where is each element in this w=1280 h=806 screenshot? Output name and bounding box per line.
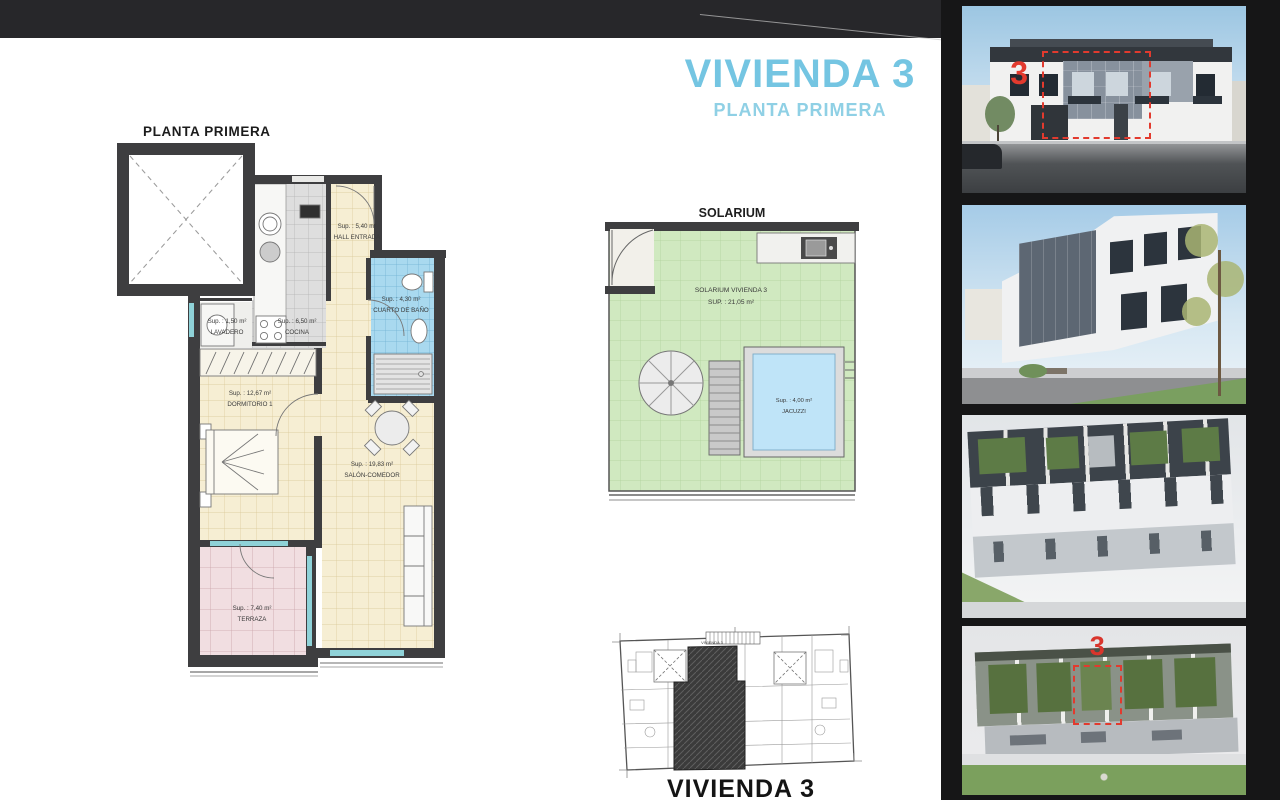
dormitorio-area-label: Sup. : 12,67 m² <box>229 390 271 397</box>
umbrella <box>639 351 703 415</box>
stairwell <box>123 149 249 290</box>
key-plan: VIVIENDA 3 VIVIENDA 3 <box>598 620 872 806</box>
lavadero-name-label: LAVADERO <box>211 329 244 336</box>
sheet-subtitle: PLANTA PRIMERA <box>640 100 960 121</box>
render-photo-aerial-top: 3 <box>962 626 1246 795</box>
window <box>1144 232 1167 266</box>
terrace-furniture <box>1081 731 1107 743</box>
sun-lounger <box>709 361 740 455</box>
roof-turf <box>978 437 1027 475</box>
hall-area-label: Sup. : 5,40 m² <box>338 223 377 230</box>
roof-turf <box>988 664 1028 714</box>
roof-turf <box>1046 436 1079 470</box>
sheet-title: VIVIENDA 3 <box>640 52 960 97</box>
roof-turf <box>1175 657 1218 707</box>
unit-number-marker: 3 <box>1010 55 1028 92</box>
main-floor-plan: Sup. : 5,40 m² HALL ENTRADA Sup. : 4,30 … <box>105 118 460 690</box>
key-plan-unit-tag: VIVIENDA 3 <box>701 640 724 645</box>
dormitorio-name-label: DORMITORIO 1 <box>227 401 273 408</box>
roof-turf <box>1037 663 1072 713</box>
facade-panel <box>1019 230 1096 347</box>
road <box>962 602 1246 618</box>
cocina-area-label: Sup. : 6,50 m² <box>278 318 317 325</box>
solarium-label-line1: SOLARIUM VIVIENDA 3 <box>695 287 768 294</box>
distant-building <box>965 289 1002 341</box>
roof-turf <box>1129 431 1167 466</box>
top-black-bar <box>0 0 941 38</box>
road <box>962 144 1246 193</box>
jacuzzi-area-label: Sup. : 4,00 m² <box>776 398 812 404</box>
render-photo-street-angle <box>962 205 1246 404</box>
roof-turf <box>1124 659 1164 709</box>
jacuzzi: Sup. : 4,00 m² JACUZZI <box>744 347 855 457</box>
car <box>962 144 1002 168</box>
roof-turf <box>1181 427 1219 463</box>
solarium-label-line2: SUP. : 21,05 m² <box>708 299 755 306</box>
bano-area-label: Sup. : 4,30 m² <box>382 296 421 303</box>
salon-name-label: SALÓN-COMEDOR <box>344 472 400 479</box>
terrace-furniture <box>1010 735 1046 746</box>
roof-paving <box>1087 435 1115 467</box>
render-photo-aerial-rear <box>962 415 1246 618</box>
terraza-area-label: Sup. : 7,40 m² <box>233 605 272 612</box>
unit-number-marker: 3 <box>1090 631 1105 662</box>
window <box>1121 291 1147 329</box>
balcony-rail <box>1193 96 1222 104</box>
bano-name-label: CUARTO DE BAÑO <box>373 307 429 314</box>
solarium-railing <box>609 495 855 500</box>
salon-area-label: Sup. : 19,83 m² <box>351 461 393 468</box>
key-plan-caption: VIVIENDA 3 <box>667 775 815 803</box>
solarium-plan: SOLARIUM Sup. : 4,00 m² JACUZZI SOLARIUM… <box>585 196 875 526</box>
building-base <box>962 754 1246 764</box>
render-photo-street-front: 3 <box>962 6 1246 193</box>
lavadero-area-label: Sup. : 1,50 m² <box>208 318 247 325</box>
window <box>1196 74 1215 95</box>
building-aerial <box>967 418 1236 578</box>
solarium-heading: SOLARIUM <box>699 206 766 220</box>
terraza-name-label: TERRAZA <box>238 616 268 623</box>
unit-highlight-box <box>1042 51 1151 139</box>
hall-name-label: HALL ENTRADA <box>334 234 381 241</box>
tree <box>976 96 1019 141</box>
photo-panel: 3 <box>941 0 1280 800</box>
solarium-door <box>605 229 655 294</box>
tree <box>1178 213 1246 396</box>
terrace-furniture <box>1151 730 1182 741</box>
window <box>1150 72 1172 95</box>
cocina-name-label: COCINA <box>285 329 310 336</box>
window <box>1110 240 1133 274</box>
jacuzzi-name-label: JACUZZI <box>782 409 806 415</box>
grass <box>962 765 1246 795</box>
solarium-counter <box>757 233 855 263</box>
unit-highlight-box <box>1073 665 1122 725</box>
